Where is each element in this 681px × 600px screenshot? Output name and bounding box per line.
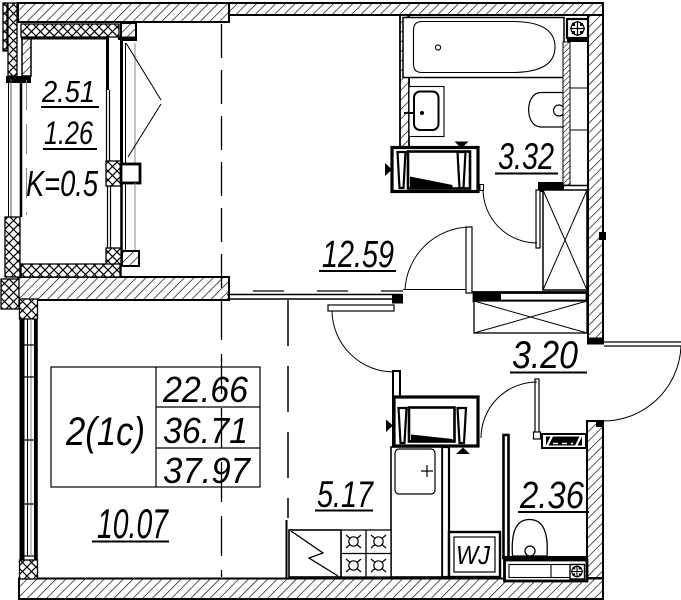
- svg-text:22.66: 22.66: [162, 369, 249, 410]
- svg-text:2.51: 2.51: [41, 74, 95, 109]
- svg-text:36.71: 36.71: [163, 410, 248, 451]
- svg-text:3.32: 3.32: [498, 136, 554, 177]
- svg-text:K=0.5: K=0.5: [26, 163, 99, 204]
- svg-text:10.07: 10.07: [97, 500, 169, 547]
- svg-text:WJ: WJ: [456, 540, 491, 570]
- svg-text:5.17: 5.17: [317, 474, 374, 515]
- svg-text:12.59: 12.59: [322, 234, 394, 276]
- svg-text:37.97: 37.97: [163, 450, 252, 491]
- svg-text:1.26: 1.26: [44, 115, 93, 151]
- svg-text:2(1c): 2(1c): [65, 410, 145, 454]
- svg-text:3.20: 3.20: [512, 334, 578, 377]
- svg-text:2.36: 2.36: [519, 475, 585, 517]
